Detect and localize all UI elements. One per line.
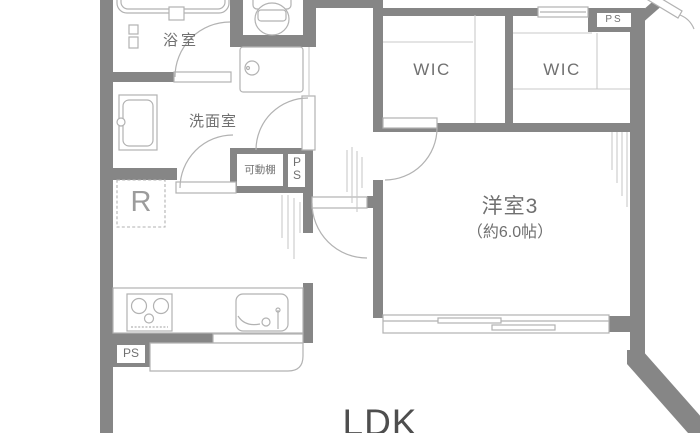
washer-icon [123, 100, 153, 146]
wall-wic-divider [505, 15, 513, 123]
sliding-door-panel-2 [492, 325, 555, 330]
ldk-label: LDK [320, 402, 440, 433]
room3-door-leaf [383, 118, 437, 128]
wall-sliding-door-stub [608, 316, 633, 332]
door-jamb-ldk [367, 196, 379, 208]
shower-icon [129, 25, 138, 34]
toilet-seat-icon [258, 10, 286, 21]
movable-shelf-label: 可動棚 [237, 164, 283, 176]
room3-size-label: （約6.0帖） [435, 224, 585, 242]
washroom-label: 洗面室 [178, 113, 248, 130]
entrance-door-arc [680, 15, 694, 29]
wic-right-label: WIC [533, 60, 591, 80]
kitchen-opening [213, 334, 303, 343]
washroom-south-door-arc [180, 135, 233, 188]
wall-top-left-strip [303, 0, 383, 8]
wic-left-label: WIC [403, 60, 461, 80]
wall-toilet-bottom [230, 35, 316, 47]
bathroom-door-arc [175, 22, 230, 77]
ps-entrance-label: PS [597, 14, 631, 26]
washroom-east-door [302, 96, 315, 150]
floorplan: 浴室 洗面室 可動棚 PS WIC WIC PS 洋室3 （約6.0帖） R P… [0, 0, 700, 433]
refrigerator-label: R [117, 186, 165, 219]
wall-top [373, 8, 538, 16]
washer-drain-icon [117, 118, 125, 126]
washroom-south-door [176, 182, 236, 193]
ps-hall-label: PS [290, 156, 304, 181]
wall-bath-bottom [112, 72, 174, 82]
wall-left [100, 0, 113, 433]
shower-hose-icon [129, 37, 138, 48]
room3-door-arc [385, 128, 437, 180]
kitchen-bar-counter [150, 343, 303, 371]
interior-lines [282, 15, 630, 259]
wall-kitchen-right [303, 283, 313, 343]
wall-bottom-right-diagonal [627, 350, 700, 433]
washroom-east-door-arc [256, 98, 308, 150]
wall-washroom-bottom [112, 168, 177, 180]
ldk-door-arc [312, 203, 367, 258]
sliding-door-panel-1 [438, 318, 501, 323]
bath-controller-icon [169, 7, 184, 20]
wall-right [630, 12, 645, 360]
bathroom-label: 浴室 [146, 32, 216, 49]
wall-corridor-upper [373, 0, 383, 125]
room3-label: 洋室3 [440, 195, 580, 219]
sink-icon [236, 294, 288, 331]
floorplan-canvas [0, 0, 700, 433]
ldk-door-leaf [312, 197, 367, 208]
bathroom-door-threshold [174, 72, 231, 82]
ps-kitchen-label: PS [117, 347, 145, 361]
